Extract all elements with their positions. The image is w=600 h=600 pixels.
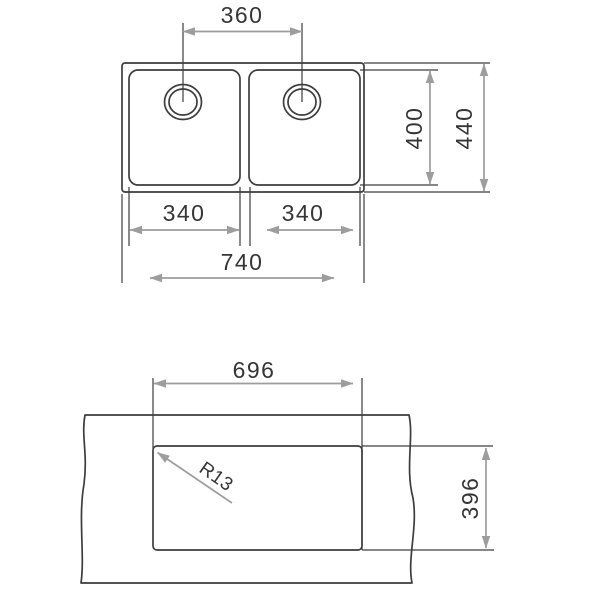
sink-rim-outline xyxy=(122,63,364,192)
cutout-depth-dimension-label: 396 xyxy=(457,477,483,520)
worktop-cutout-view: 696 396 R13 xyxy=(81,357,494,583)
sink-technical-drawing: 360 400 440 340 340 740 xyxy=(0,0,600,600)
cutout-width-dimension-label: 696 xyxy=(233,357,276,383)
cutout-opening-outline xyxy=(153,446,362,550)
left-bowl-width-dimension-label: 340 xyxy=(163,200,206,226)
drain-spacing-dimension-label: 360 xyxy=(221,2,264,28)
overall-width-dimension-label: 740 xyxy=(221,249,264,275)
overall-depth-dimension-label: 440 xyxy=(451,107,477,150)
sink-top-view: 360 400 440 340 340 740 xyxy=(122,2,490,283)
drawing-svg: 360 400 440 340 340 740 xyxy=(0,0,600,600)
inner-depth-dimension-label: 400 xyxy=(401,107,427,150)
right-bowl-width-dimension-label: 340 xyxy=(282,200,325,226)
